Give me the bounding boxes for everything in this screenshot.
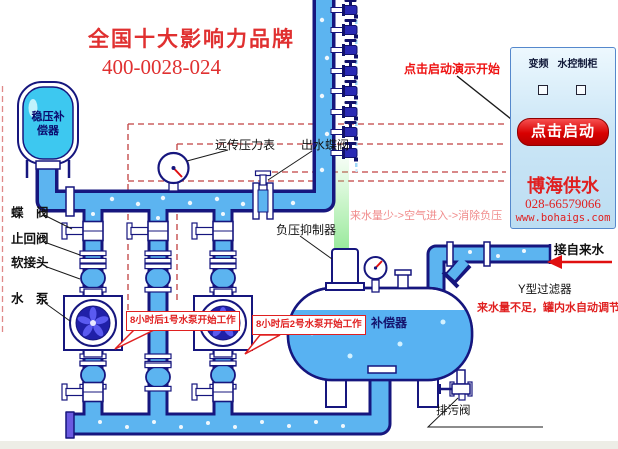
control-cabinet-panel: 变频 水控制柜 点击启动 博海供水 028-66579066 www.bohai… — [510, 47, 616, 229]
stabilizer-tank-label-line1: 稳压补 — [24, 112, 72, 123]
company-phone: 028-66579066 — [511, 196, 615, 212]
butterfly-valve-icon — [192, 222, 233, 241]
check-valve-label: 止回阀 — [11, 233, 49, 246]
vacuum-note: 来水量少->空气进入->消除负压 — [350, 211, 502, 222]
brand-phone: 400-0028-024 — [102, 57, 221, 78]
soft-joint-label: 软接头 — [11, 257, 49, 270]
remote-pressure-gauge — [159, 153, 189, 191]
indicator-checkbox-1[interactable] — [538, 85, 548, 95]
panel-title-right: 水控制柜 — [558, 55, 598, 70]
brand-title: 全国十大影响力品牌 — [88, 29, 295, 50]
outlet-valve-label: 出水蝶阀 — [301, 139, 349, 151]
pump-label: 水 泵 — [11, 293, 49, 306]
tap-water-label: 接自来水 — [554, 244, 604, 257]
soft-joint-icon — [145, 363, 171, 391]
company-name: 博海供水 — [511, 172, 615, 198]
pump1-callout: 8小时后1号水泵开始工作 — [126, 311, 240, 331]
vacuum-suppressor — [326, 249, 364, 290]
panel-title: 变频 水控制柜 — [511, 55, 615, 70]
y-filter-label: Y型过滤器 — [518, 285, 572, 297]
remote-gauge-label: 远传压力表 — [215, 139, 275, 151]
butterfly-valve-icon — [62, 222, 103, 241]
butterfly-valve-label: 蝶 阀 — [11, 207, 49, 220]
start-demo-button[interactable]: 点击启动 — [517, 118, 609, 146]
butterfly-valve-icon — [62, 383, 103, 402]
soft-joint-icon — [80, 264, 106, 292]
stabilizer-tank-label-line2: 偿器 — [24, 126, 72, 137]
vacuum-suppressor-label: 负压抑制器 — [276, 224, 336, 236]
soft-joint-icon — [210, 264, 236, 292]
soft-joint-icon — [145, 264, 171, 292]
water-supply-demo-screen: 全国十大影响力品牌 400-0028-024 点击启动演示开始 稳压补 偿器 蝶… — [0, 0, 618, 449]
pump2-callout: 8小时后2号水泵开始工作 — [252, 315, 366, 335]
panel-title-left: 变频 — [529, 55, 549, 70]
company-website: www.bohaigs.com — [511, 212, 615, 224]
drain-valve-label: 排污阀 — [436, 406, 471, 418]
indicator-checkbox-2[interactable] — [576, 85, 586, 95]
compensator-label: 补偿器 — [371, 317, 407, 329]
butterfly-valve-icon — [127, 222, 168, 241]
bottom-strip — [0, 441, 618, 449]
demo-start-hint: 点击启动演示开始 — [404, 63, 500, 75]
tank-nozzle — [395, 270, 411, 288]
header-flange — [66, 187, 74, 216]
pump-1 — [64, 289, 122, 357]
butterfly-valve-icon — [192, 383, 233, 402]
low-water-note: 来水量不足，罐内水自动调节 — [477, 303, 618, 314]
flow-arrow — [547, 255, 612, 269]
